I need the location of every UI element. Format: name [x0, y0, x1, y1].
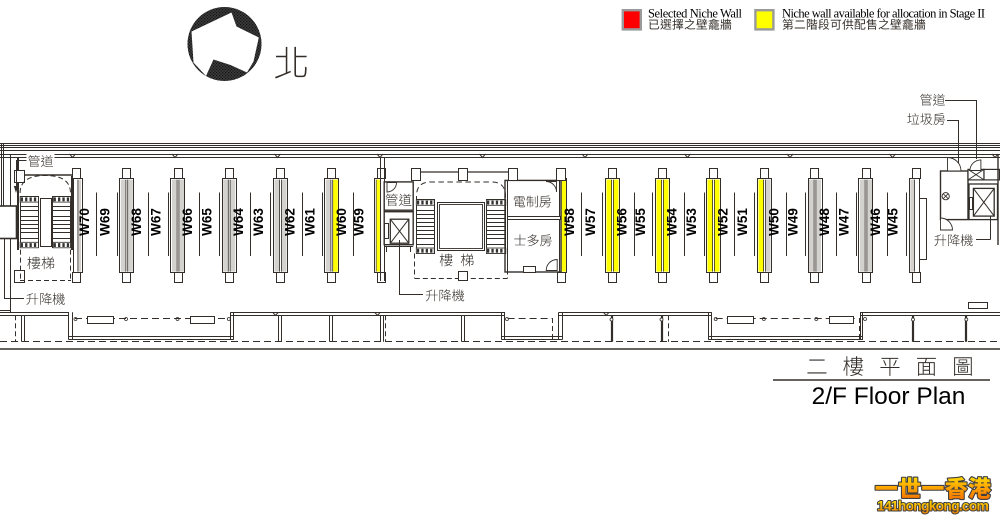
svg-text:141hongkong.com: 141hongkong.com	[877, 498, 989, 514]
svg-text:W50: W50	[767, 208, 782, 236]
svg-text:Niche wall available for alloc: Niche wall available for allocation in S…	[782, 7, 985, 21]
svg-text:W62: W62	[283, 208, 298, 236]
svg-text:W66: W66	[180, 208, 195, 236]
svg-text:W58: W58	[562, 208, 577, 236]
svg-text:W51: W51	[735, 208, 750, 236]
svg-text:W63: W63	[251, 208, 266, 236]
svg-text:W56: W56	[615, 208, 630, 236]
svg-text:W69: W69	[97, 208, 112, 236]
svg-text:W54: W54	[665, 208, 680, 236]
svg-text:W53: W53	[684, 208, 699, 236]
svg-text:W52: W52	[716, 208, 731, 236]
svg-text:W45: W45	[886, 208, 901, 236]
svg-text:Selected Niche Wall: Selected Niche Wall	[648, 7, 743, 21]
svg-text:W47: W47	[837, 208, 852, 236]
svg-text:W57: W57	[583, 208, 598, 236]
svg-text:W61: W61	[302, 208, 317, 236]
svg-text:W67: W67	[149, 208, 164, 236]
svg-text:W49: W49	[786, 208, 801, 236]
svg-text:W65: W65	[200, 208, 215, 236]
svg-text:W59: W59	[351, 208, 366, 236]
svg-text:W60: W60	[334, 208, 349, 236]
svg-text:W46: W46	[868, 208, 883, 236]
svg-text:W48: W48	[817, 208, 832, 236]
svg-text:W68: W68	[129, 208, 144, 236]
svg-text:W70: W70	[77, 208, 92, 236]
svg-text:W55: W55	[633, 208, 648, 236]
svg-text:W64: W64	[231, 208, 246, 236]
svg-text:2/F Floor Plan: 2/F Floor Plan	[812, 383, 966, 410]
